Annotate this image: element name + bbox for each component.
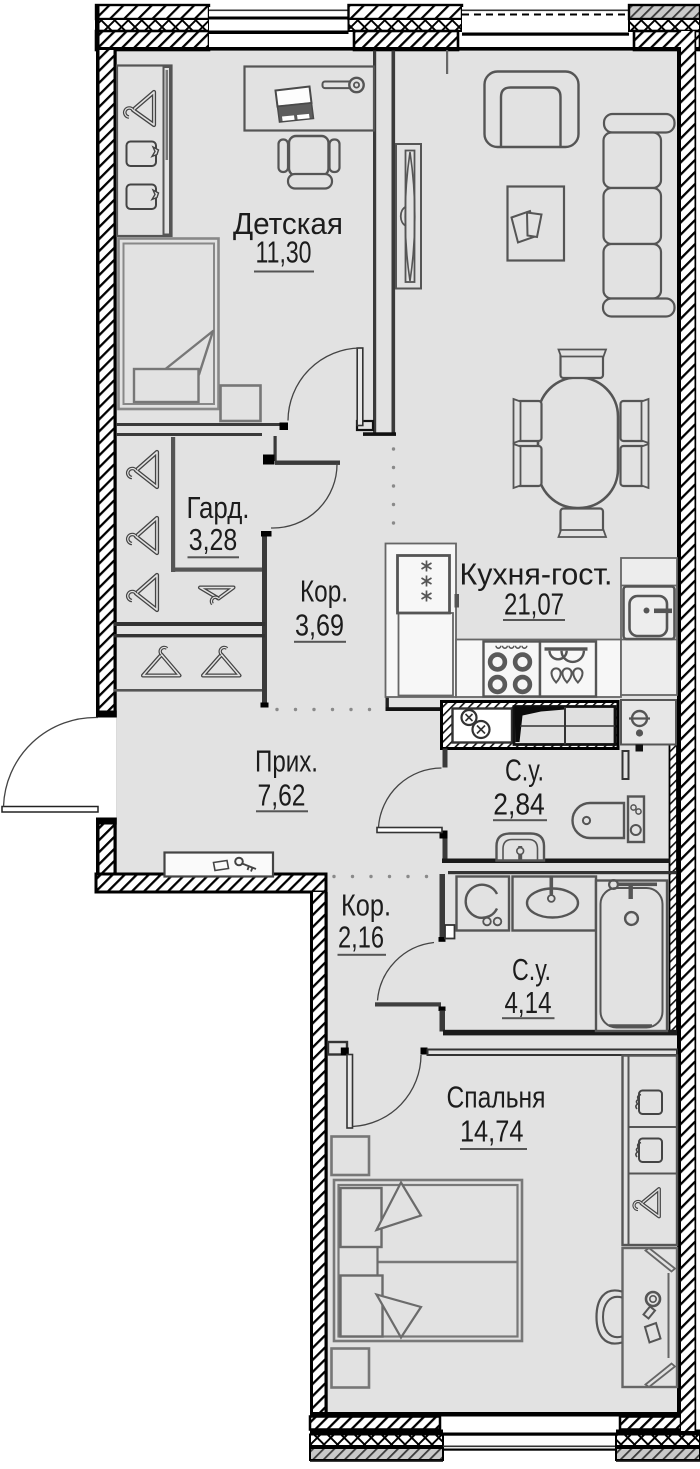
svg-text:2,84: 2,84 (493, 787, 545, 822)
svg-text:С.у.: С.у. (505, 753, 544, 788)
svg-text:4,14: 4,14 (505, 985, 552, 1020)
svg-text:2,16: 2,16 (338, 920, 384, 955)
svg-text:11,30: 11,30 (256, 235, 312, 270)
svg-text:Прих.: Прих. (255, 744, 318, 779)
svg-text:21,07: 21,07 (504, 587, 564, 622)
svg-text:С.у.: С.у. (512, 952, 551, 987)
svg-text:Кор.: Кор. (341, 888, 391, 923)
svg-text:Кор.: Кор. (300, 574, 348, 609)
svg-text:3,69: 3,69 (295, 608, 344, 643)
svg-text:3,28: 3,28 (189, 522, 238, 557)
svg-text:14,74: 14,74 (460, 1114, 524, 1149)
svg-text:Спальня: Спальня (447, 1080, 546, 1115)
svg-text:7,62: 7,62 (258, 778, 306, 813)
svg-text:Гард.: Гард. (187, 490, 250, 525)
